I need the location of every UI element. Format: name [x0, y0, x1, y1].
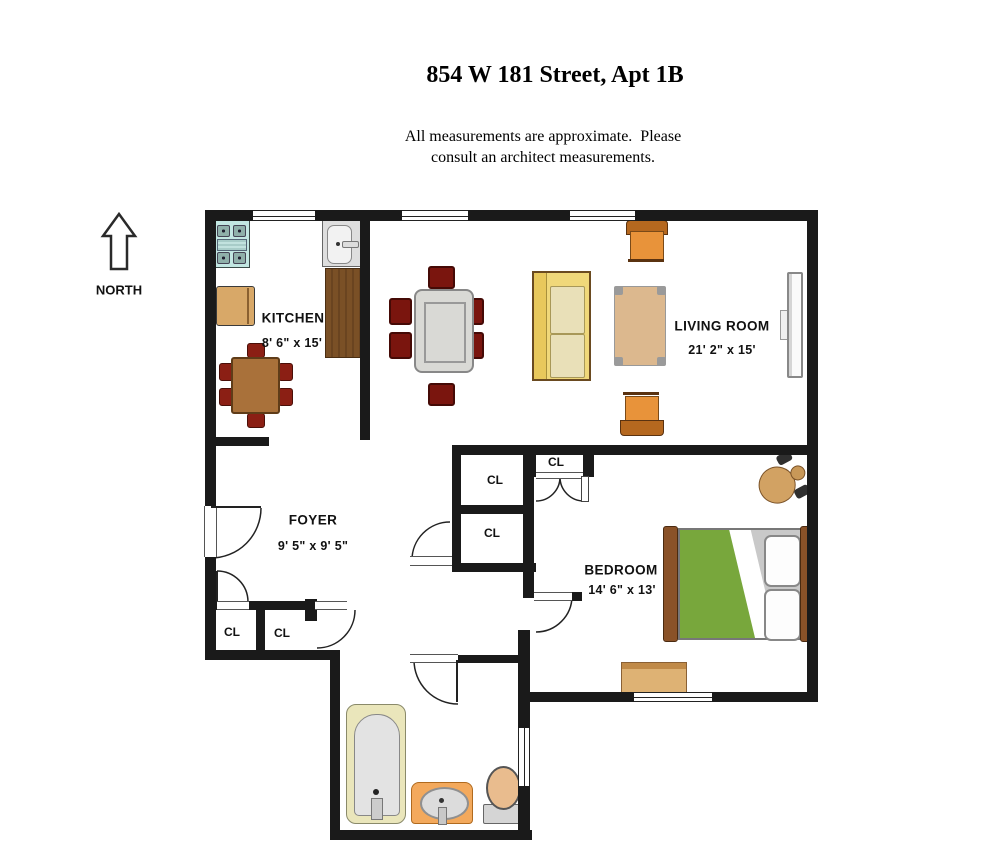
wall-bathroom-east-upper — [518, 630, 530, 728]
armchair-legs — [628, 259, 664, 262]
wall-bedroom-closet-west — [528, 445, 536, 477]
wall-bedroom-south-left — [530, 692, 634, 702]
window-bathroom — [518, 728, 530, 786]
kitchen-sink — [322, 220, 361, 267]
bedroom-door-arc — [536, 596, 572, 632]
tv — [787, 272, 803, 378]
bathtub-faucet — [371, 798, 383, 820]
sofa-cushion — [550, 334, 585, 378]
wall-east — [807, 210, 818, 702]
table-corner — [657, 286, 666, 295]
page-title: 854 W 181 Street, Apt 1B — [355, 62, 755, 89]
bedroom-closet-left-arc — [536, 477, 560, 501]
bathroom-sink-faucet — [438, 807, 447, 825]
wall-bathroom-south — [330, 830, 532, 840]
bed-footboard — [663, 526, 678, 642]
kitchen-chair — [247, 413, 265, 428]
pillow — [764, 535, 801, 587]
entry-door-leaf — [211, 506, 261, 508]
closet-door-arc — [217, 571, 248, 602]
wall-corridor-south — [457, 655, 530, 663]
table-corner — [614, 357, 623, 366]
refrigerator — [216, 286, 255, 326]
kitchen-table — [231, 357, 280, 414]
stove-burner — [217, 252, 230, 264]
wall-west-upper — [205, 210, 216, 508]
closet-label-hall-upper: CL — [487, 473, 503, 487]
dining-chair — [428, 266, 455, 289]
dining-chair — [389, 332, 412, 359]
table-corner — [657, 357, 666, 366]
bedroom-door-frame — [534, 592, 572, 601]
sofa-cushion — [550, 286, 585, 334]
stove-panel — [217, 239, 247, 251]
bedroom-closet-door-frame — [536, 472, 583, 479]
wall-livingroom-south — [452, 445, 818, 455]
dresser-top — [622, 663, 686, 669]
wall-kitchen-south — [205, 437, 269, 446]
foyer-dims: 9' 5" x 9' 5" — [278, 539, 348, 553]
wall-bathroom-west — [330, 650, 340, 840]
table-corner — [614, 286, 623, 295]
sofa-back — [534, 273, 547, 379]
corridor-door-frame — [315, 601, 347, 610]
bathroom-door-frame — [410, 654, 458, 663]
kitchen-counter — [325, 268, 362, 358]
bedroom-closet-door-leaf — [581, 476, 589, 502]
bathtub-drain — [373, 789, 379, 795]
kitchen-chair — [278, 363, 293, 381]
dining-table-inner — [424, 302, 466, 363]
closet-label-bedroom: CL — [548, 455, 564, 469]
closet-door-frame — [217, 601, 249, 610]
bed — [678, 528, 804, 640]
bathroom-door-leaf — [456, 660, 458, 702]
armchair-back — [620, 420, 664, 436]
foyer-hall-door-frame — [410, 556, 452, 566]
wall-foyer-closet-bottom — [205, 650, 335, 660]
foyer-label: FOYER — [289, 513, 338, 528]
entry-door-arc — [211, 508, 261, 558]
kitchen-label: KITCHEN — [262, 311, 325, 326]
dining-table — [414, 289, 474, 373]
stove-burner — [217, 225, 230, 237]
closet-door-leaf — [216, 571, 218, 602]
sink-handle — [342, 241, 359, 248]
armchair-legs — [623, 392, 659, 395]
wall-bedroom-south-right — [712, 692, 818, 702]
sink-faucet — [336, 242, 340, 246]
living-room-dims: 21' 2" x 15' — [688, 343, 756, 357]
disclaimer-line-2: consult an architect measurements. — [293, 149, 793, 167]
bedroom-dims: 14' 6" x 13' — [588, 583, 656, 597]
stove — [213, 220, 250, 268]
north-arrow-icon — [100, 212, 138, 272]
armchair-top — [626, 220, 666, 262]
disclaimer-line-1: All measurements are approximate. Please — [293, 128, 793, 146]
wall-bedroom-closet-east — [583, 445, 594, 477]
window-living-left — [402, 210, 468, 221]
pillow — [764, 589, 801, 641]
bedroom-chair — [742, 451, 810, 518]
armchair-bottom — [620, 392, 662, 436]
corridor-door-arc — [317, 610, 355, 648]
coffee-table — [614, 286, 666, 366]
closet-label-foyer-left: CL — [224, 625, 240, 639]
wall-kitchen-divider — [360, 210, 370, 440]
north-label: NORTH — [96, 283, 142, 298]
refrigerator-door-line — [247, 288, 249, 324]
foyer-hall-door-arc — [412, 522, 450, 560]
closet-label-hall-lower: CL — [484, 526, 500, 540]
bathroom-door-arc — [414, 660, 458, 704]
kitchen-chair — [278, 388, 293, 406]
window-bedroom — [634, 692, 712, 702]
window-kitchen — [253, 210, 315, 221]
bathtub — [346, 704, 406, 824]
window-living-right — [570, 210, 635, 221]
closet-label-foyer-right: CL — [274, 626, 290, 640]
armchair-seat — [630, 231, 664, 260]
dining-chair — [389, 298, 412, 325]
bedroom-label: BEDROOM — [584, 563, 657, 578]
dresser — [621, 662, 687, 693]
floor-plan-page: 854 W 181 Street, Apt 1B All measurement… — [0, 0, 1003, 859]
stove-burner — [233, 252, 246, 264]
toilet-bowl — [486, 766, 521, 810]
dining-chair — [428, 383, 455, 406]
sofa — [532, 271, 591, 381]
wall-bathroom-east-lower — [518, 786, 530, 840]
entry-door-frame — [204, 506, 217, 557]
wall-closet-mid — [452, 505, 534, 514]
bathroom-sink-drain — [439, 798, 444, 803]
kitchen-dims: 8' 6" x 15' — [262, 336, 322, 350]
living-room-label: LIVING ROOM — [674, 319, 769, 334]
bathroom-sink — [411, 782, 473, 824]
wall-bedroom-door-jamb — [571, 592, 582, 601]
stove-burner — [233, 225, 246, 237]
